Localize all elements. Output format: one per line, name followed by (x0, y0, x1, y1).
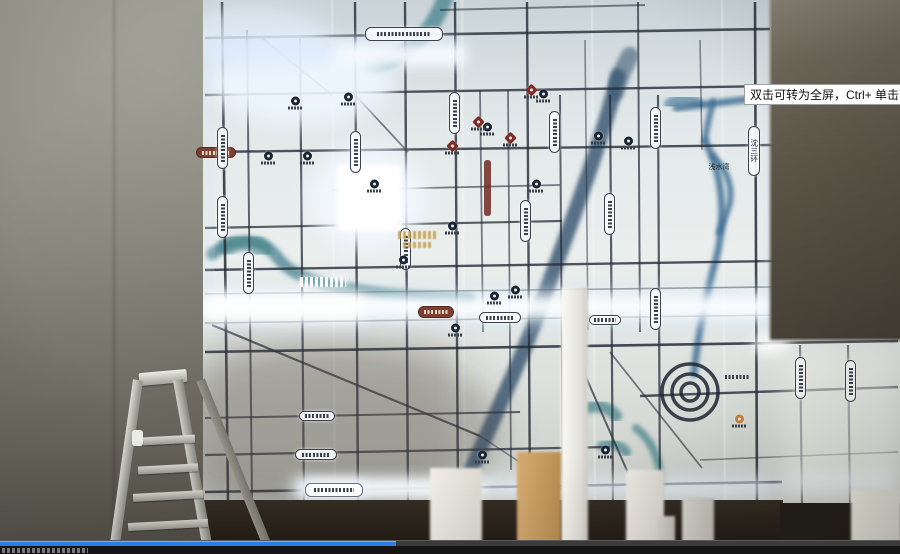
light-glow (782, 350, 898, 500)
video-display-area[interactable]: 浅水湾沈三环 双击可转为全屏，Ctrl+ 单击可转为 (0, 0, 900, 554)
light-glow (203, 294, 363, 320)
light-glow (204, 60, 210, 300)
foreground-box (561, 288, 588, 554)
video-controls-bar[interactable] (0, 546, 900, 554)
light-glow (336, 45, 466, 66)
fullscreen-hint-tooltip: 双击可转为全屏，Ctrl+ 单击可转为 (744, 84, 900, 105)
river (670, 100, 698, 105)
river (228, 241, 262, 250)
tooltip-text: 双击可转为全屏，Ctrl+ 单击可转为 (750, 86, 900, 103)
foreground-box (517, 452, 561, 554)
metro-line (484, 160, 491, 216)
foreground-wall-edge (770, 0, 900, 340)
ladder-hinge-knob (132, 430, 143, 446)
controls-text-smudge (2, 548, 88, 553)
light-glow (337, 165, 401, 231)
